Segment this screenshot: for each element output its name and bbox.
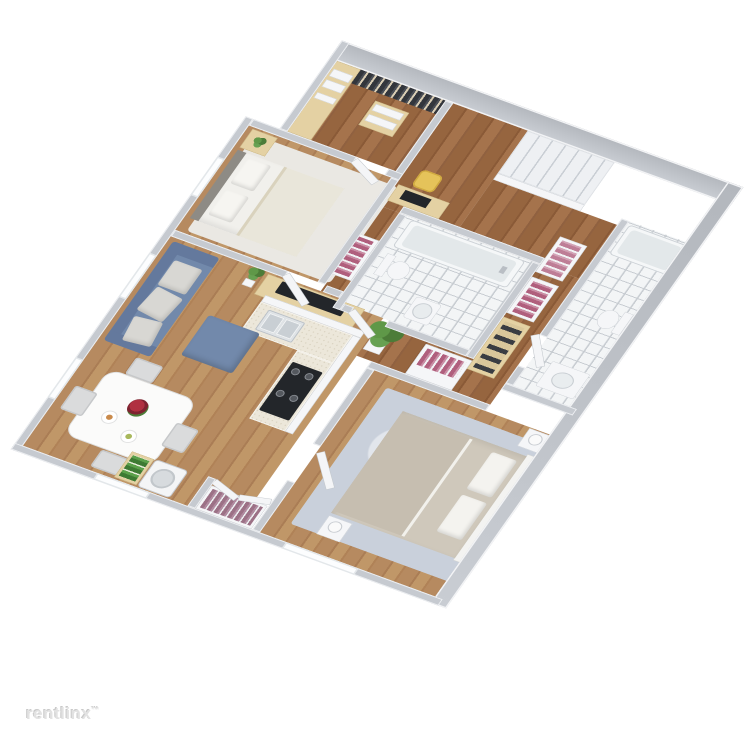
floorplan-render	[11, 28, 744, 609]
watermark-text: rentlinx	[26, 704, 91, 723]
rentlinx-watermark: rentlinx™	[26, 704, 100, 724]
floorplan-screenshot: rentlinx™	[0, 0, 750, 750]
watermark-trademark-symbol: ™	[91, 705, 100, 714]
